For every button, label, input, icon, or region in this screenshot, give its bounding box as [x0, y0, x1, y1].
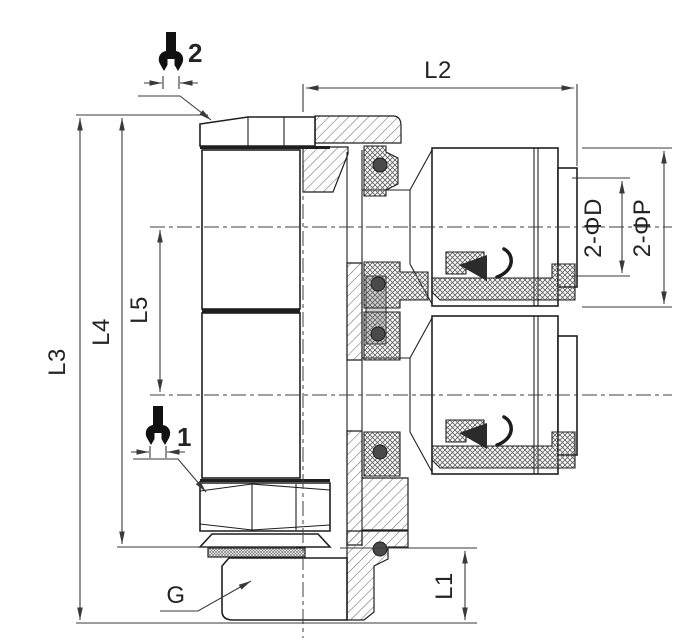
port-upper-neck-cone-top [410, 150, 432, 190]
thread-label: G [166, 582, 185, 609]
knurled-ring [208, 548, 305, 557]
dim-label-l4: L4 [88, 318, 115, 346]
o-ring [373, 542, 387, 556]
wrench-1-leader [133, 459, 206, 492]
hatch-mid-manifold [347, 263, 362, 360]
dimension-l4: L4 [88, 118, 122, 544]
port-lower-neck-cone-top [410, 318, 432, 358]
o-ring [373, 445, 387, 459]
threaded-stud [222, 558, 347, 620]
wrench-callout-top: 2 [138, 32, 211, 120]
o-ring [371, 327, 385, 341]
dimension-l5: L5 [126, 230, 160, 392]
port-lower-neck-cone-bot [410, 432, 432, 472]
dim-label-phi-p: 2-ΦP [629, 199, 656, 258]
hex-nut-bottom [200, 483, 330, 531]
drawing-canvas: L3 L4 L5 L2 L1 2-ΦD 2-ΦP G [0, 0, 675, 644]
dimension-l2: L2 [306, 57, 574, 88]
dim-label-l5: L5 [126, 296, 153, 324]
hatch-upper-taper [303, 147, 348, 192]
wrench-callout-bottom: 1 [131, 406, 206, 492]
washer-flange [200, 534, 330, 547]
dim-label-l1: L1 [431, 572, 458, 600]
wrench-glyph [146, 406, 170, 445]
hex-nut-top [200, 117, 315, 146]
fitting-technical-drawing: L3 L4 L5 L2 L1 2-ΦD 2-ΦP G [0, 0, 675, 644]
wrench-glyph [159, 32, 183, 71]
wrench-2-leader [138, 96, 211, 120]
dim-label-l2: L2 [424, 57, 452, 84]
o-ring [373, 158, 387, 172]
wrench-callout-1-label: 1 [177, 422, 191, 452]
hatch-top-flange [315, 116, 401, 143]
dim-label-phi-d: 2-ΦD [580, 198, 607, 258]
wrench-jaw-ticks [150, 446, 166, 458]
dimension-l1: L1 [431, 551, 465, 620]
dimension-l3: L3 [44, 118, 80, 620]
wrench-callout-2-label: 2 [188, 38, 202, 68]
wrench-jaw-ticks [163, 76, 179, 89]
o-ring [371, 277, 385, 291]
body-barrel-upper [202, 150, 300, 309]
dim-label-l3: L3 [44, 348, 71, 376]
